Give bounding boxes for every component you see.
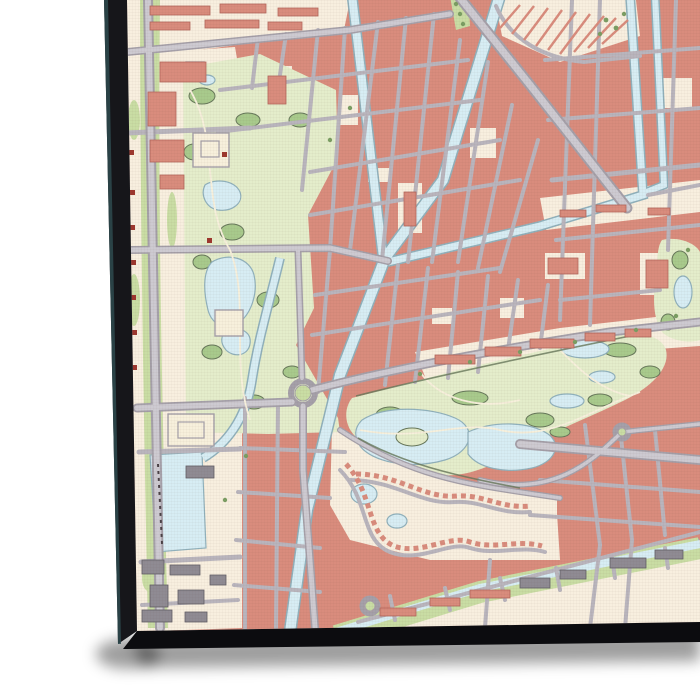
pond-island: [396, 428, 428, 446]
map-face: [120, 0, 700, 640]
canvas-map-print: [0, 0, 700, 700]
product-photo-scene: [0, 0, 700, 700]
